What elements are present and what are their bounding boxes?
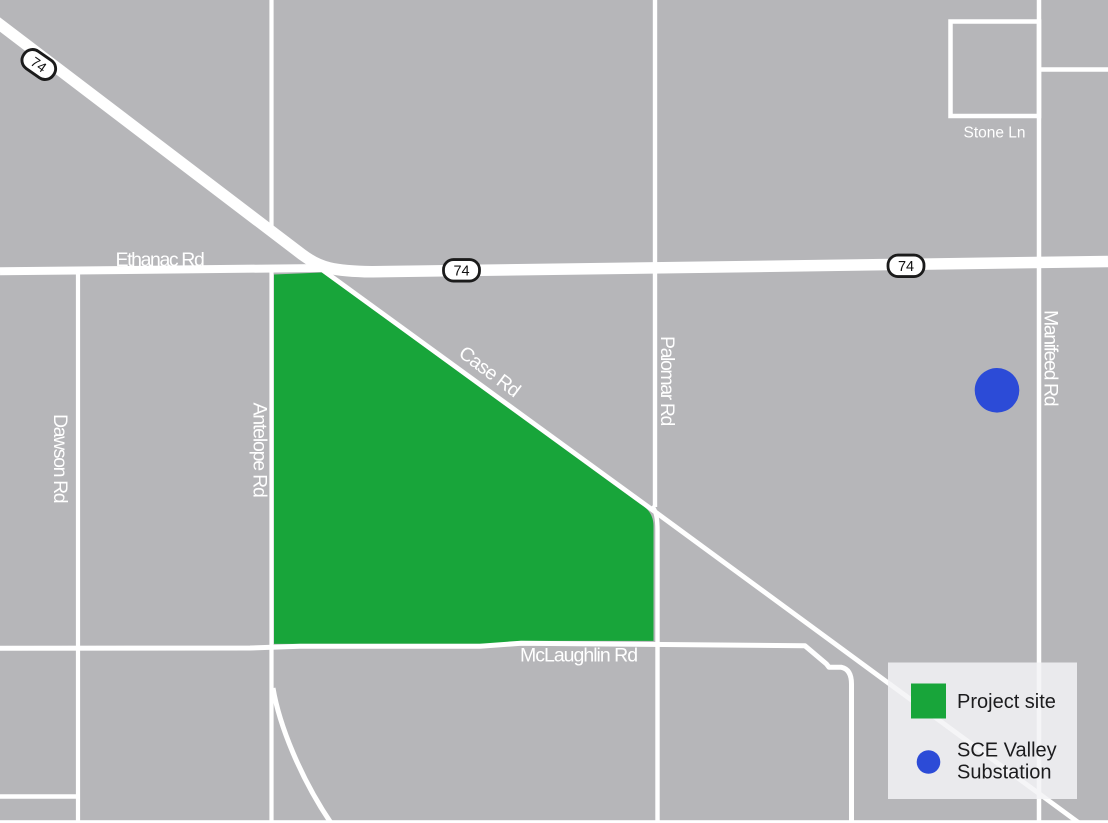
svg-text:Project site: Project site [957, 691, 1056, 713]
svg-text:Palomar Rd: Palomar Rd [656, 336, 678, 426]
svg-text:74: 74 [453, 263, 469, 279]
svg-text:McLaughlin Rd: McLaughlin Rd [520, 645, 637, 667]
svg-text:74: 74 [898, 259, 914, 275]
svg-text:Stone Ln: Stone Ln [964, 125, 1026, 142]
svg-text:Antelope Rd: Antelope Rd [249, 403, 271, 497]
svg-text:SCE Valley: SCE Valley [957, 740, 1057, 762]
svg-text:Dawson Rd: Dawson Rd [49, 414, 71, 503]
svg-text:Substation: Substation [957, 762, 1052, 784]
svg-text:Ethanac Rd: Ethanac Rd [116, 249, 204, 271]
svg-text:Manifeed Rd: Manifeed Rd [1040, 310, 1062, 406]
